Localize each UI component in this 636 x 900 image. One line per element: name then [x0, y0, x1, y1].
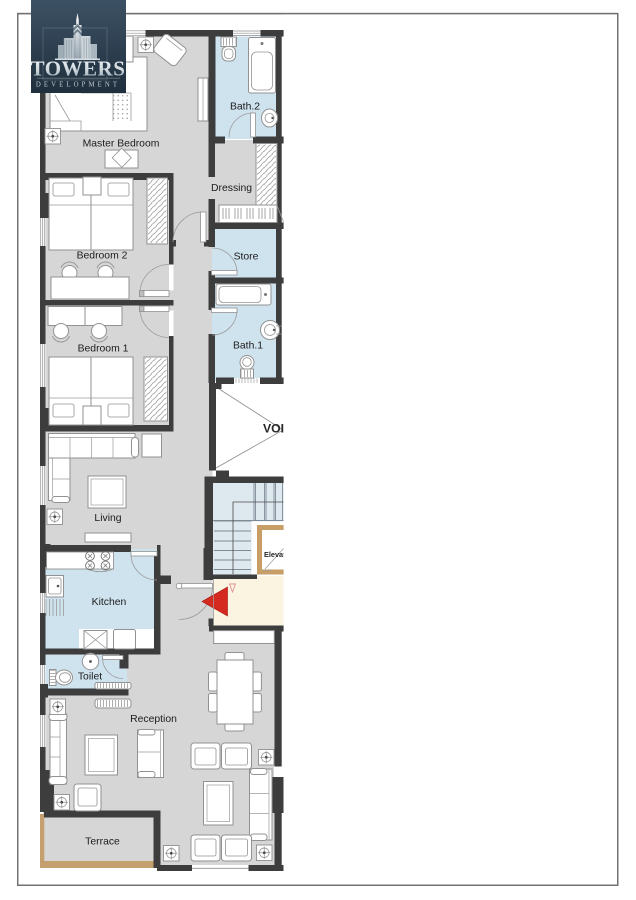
svg-text:DEVELOPMENT: DEVELOPMENT [36, 82, 120, 89]
svg-text:Store: Store [234, 252, 259, 263]
svg-text:Bath.1: Bath.1 [233, 341, 263, 352]
svg-text:Bedroom 2: Bedroom 2 [77, 251, 128, 262]
svg-text:Kitchen: Kitchen [92, 597, 127, 608]
svg-text:Master Bedroom: Master Bedroom [83, 139, 160, 150]
svg-text:Living: Living [94, 513, 121, 524]
svg-text:Dressing: Dressing [211, 183, 252, 194]
svg-text:Reception: Reception [130, 714, 177, 725]
svg-text:Bedroom 1: Bedroom 1 [78, 344, 129, 355]
svg-text:Toilet: Toilet [78, 672, 102, 683]
svg-text:TOWERS: TOWERS [31, 57, 126, 81]
svg-text:Terrace: Terrace [85, 837, 120, 848]
svg-text:Bath.2: Bath.2 [230, 102, 260, 113]
